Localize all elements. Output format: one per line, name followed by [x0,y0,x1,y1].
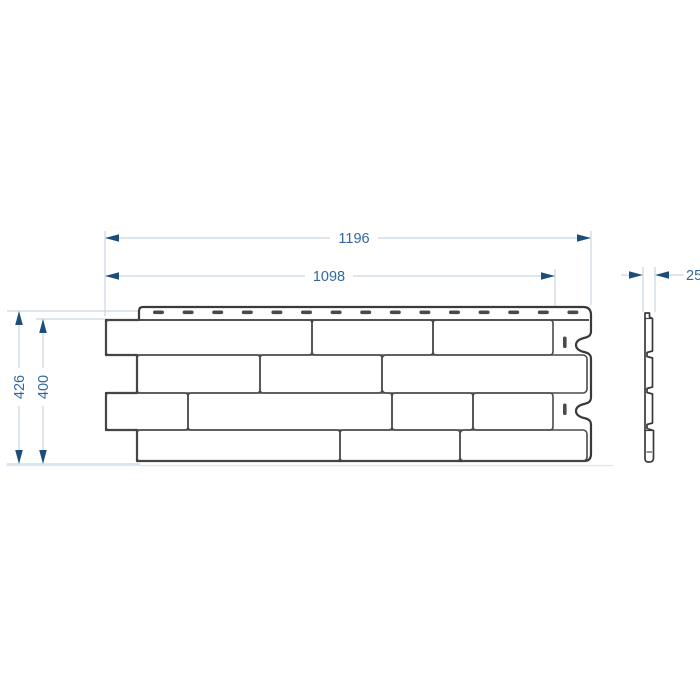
arrow-down-icon [39,450,47,464]
dim-thickness-label: 25 [686,268,700,284]
arrow-down-icon [15,450,23,464]
arrow-right-icon [629,271,643,279]
nail-slot [449,311,460,315]
arrow-right-icon [577,234,591,242]
nail-slot [508,311,519,315]
side-nail-slot [563,404,567,416]
side-profile-outline [645,313,654,462]
dim-inner-height: 400 [36,319,52,464]
nail-slot [153,311,164,315]
nail-slot [390,311,401,315]
nail-slot [212,311,223,315]
dim-outer-height: 426 [12,311,28,464]
nail-hem [153,311,578,315]
arrow-up-icon [39,319,47,333]
nail-slot [538,311,549,315]
arrow-left-icon [655,271,669,279]
nail-slot [360,311,371,315]
nail-slot [479,311,490,315]
nail-slot [331,311,342,315]
side-nail-slot [563,337,567,349]
nail-slot [183,311,194,315]
dim-thickness: 25 [621,268,700,284]
nail-slot [271,311,282,315]
arrow-left-icon [105,272,119,280]
front-view [106,307,591,461]
nail-slot [419,311,430,315]
nail-slot [301,311,312,315]
dim-outer-width-label: 1196 [338,231,369,247]
nail-slot [567,311,578,315]
dim-inner-width-label: 1098 [313,269,345,285]
dim-outer-height-label: 426 [12,375,28,399]
panel-technical-drawing: 1196 1098 426 400 25 [0,0,700,700]
dim-outer-width: 1196 [105,231,591,247]
dim-inner-height-label: 400 [36,375,52,399]
dim-inner-width: 1098 [105,269,555,285]
panel-outline [106,307,591,461]
side-profile-view [645,313,654,462]
drawing-canvas: 1196 1098 426 400 25 [0,0,700,700]
arrow-left-icon [105,234,119,242]
arrow-right-icon [541,272,555,280]
arrow-up-icon [15,311,23,325]
nail-slot [242,311,253,315]
